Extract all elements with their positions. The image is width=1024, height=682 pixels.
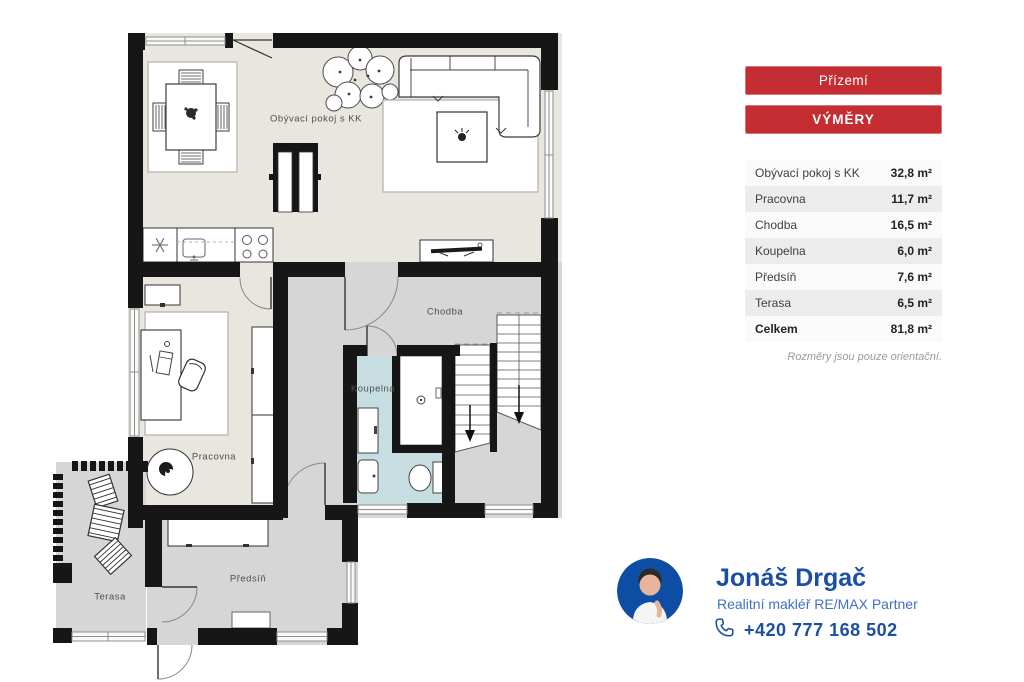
room-label-koupelna: Koupelna — [351, 384, 395, 395]
areas-header-button[interactable]: VÝMĚRY — [745, 105, 942, 134]
kitchen-counter — [143, 228, 273, 262]
phone-row: +420 777 168 502 — [712, 616, 898, 644]
agent-name: Jonáš Drgač — [716, 564, 866, 593]
room-label-terasa: Terasa — [94, 592, 126, 603]
phone-number: +420 777 168 502 — [744, 620, 898, 641]
phone-icon — [712, 616, 735, 644]
agent-role: Realitní makléř RE/MAX Partner — [717, 596, 918, 612]
table-row-total: Celkem 81,8 m² — [745, 316, 942, 342]
room-label-predsin: Předsíň — [230, 574, 266, 585]
table-row: Koupelna 6,0 m² — [745, 238, 942, 264]
table-row: Chodba 16,5 m² — [745, 212, 942, 238]
tv-stand — [420, 240, 493, 262]
room-label-living: Obývací pokoj s KK — [270, 114, 362, 125]
table-row: Obývací pokoj s KK 32,8 m² — [745, 160, 942, 186]
room-label-pracovna: Pracovna — [192, 452, 236, 463]
table-row: Terasa 6,5 m² — [745, 290, 942, 316]
coffee-table — [437, 112, 487, 162]
disclaimer-note: Rozměry jsou pouze orientační. — [745, 351, 942, 363]
dining-set — [148, 62, 237, 172]
table-row: Předsíň 7,6 m² — [745, 264, 942, 290]
table-row: Pracovna 11,7 m² — [745, 186, 942, 212]
agent-avatar — [617, 558, 683, 624]
area-table: Obývací pokoj s KK 32,8 m² Pracovna 11,7… — [745, 160, 942, 342]
flyer: Obývací pokoj s KK Chodba Koupelna Praco… — [0, 0, 1024, 682]
floor-button[interactable]: Přízemí — [745, 66, 942, 95]
room-label-chodba: Chodba — [427, 307, 463, 318]
